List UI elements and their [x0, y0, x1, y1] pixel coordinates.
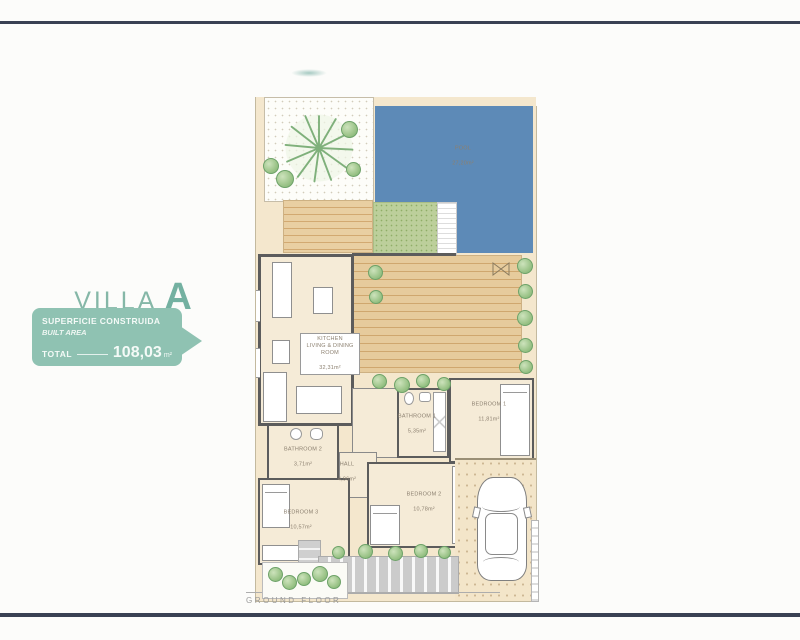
plant-icon — [268, 567, 283, 582]
room-label-bedroom2: BEDROOM 2 10,78m² — [407, 485, 442, 522]
plant-icon — [438, 546, 451, 559]
badge-line2: BUILT AREA — [42, 328, 172, 337]
top-divider — [0, 21, 800, 24]
plant-icon — [332, 546, 345, 559]
sink-icon — [419, 392, 431, 402]
plant-icon — [341, 121, 358, 138]
plant-icon — [358, 544, 373, 559]
plant-icon — [372, 374, 387, 389]
plant-icon — [368, 265, 383, 280]
room-label-bedroom1: BEDROOM 1 11,81m² — [472, 395, 507, 432]
grass-patch — [373, 202, 439, 255]
room-label-bathroom2: BATHROOM 2 3,71m² — [284, 440, 322, 477]
plant-icon — [276, 170, 294, 188]
plant-icon — [518, 284, 533, 299]
room-label-kitchen: KITCHEN LIVING & DINING ROOM 32,31m² — [306, 329, 353, 380]
plant-icon — [518, 338, 533, 353]
plant-icon — [517, 310, 533, 326]
logo-mark — [291, 69, 327, 77]
plant-icon — [263, 158, 279, 174]
bed — [370, 505, 400, 545]
sink-icon — [290, 428, 302, 440]
plant-icon — [297, 572, 311, 586]
gate — [531, 520, 539, 602]
total-leader-line — [77, 354, 108, 355]
plant-icon — [437, 377, 451, 391]
side-table — [313, 287, 333, 314]
driveway-wall — [455, 458, 536, 460]
plant-icon — [517, 258, 533, 274]
room-label-bedroom3: BEDROOM 3 10,57m² — [284, 503, 319, 540]
plant-icon — [369, 290, 383, 304]
ground-floor-label: GROUND FLOOR — [246, 596, 341, 605]
badge-arrow-icon — [180, 326, 202, 356]
badge-total-row: TOTAL 108,03 m² — [42, 344, 172, 362]
plant-icon — [394, 377, 410, 393]
plant-icon — [282, 575, 297, 590]
total-unit: m² — [164, 352, 172, 359]
window — [256, 290, 260, 322]
plant-icon — [388, 546, 403, 561]
plant-icon — [312, 566, 328, 582]
plant-icon — [414, 544, 428, 558]
paving-strip — [437, 202, 457, 255]
kitchen-counter — [263, 372, 287, 422]
room-label-bathroom1: BATHROOM 1 5,35m² — [398, 407, 436, 444]
built-area-badge: SUPERFICIE CONSTRUIDA BUILT AREA TOTAL 1… — [32, 308, 182, 366]
room-label-hall: HALL 4,96m² — [338, 455, 356, 492]
total-label: TOTAL — [42, 349, 72, 359]
toilet-icon — [404, 392, 414, 405]
wood-deck-small — [283, 200, 373, 253]
dining-table: KITCHEN LIVING & DINING ROOM 32,31m² — [300, 333, 360, 375]
plant-icon — [327, 575, 341, 589]
sofa — [272, 262, 292, 318]
bottom-divider — [0, 613, 800, 617]
plant-icon — [346, 162, 361, 177]
kitchen-island — [296, 386, 342, 414]
car-icon — [477, 477, 527, 581]
plant-icon — [519, 360, 533, 374]
toilet-icon — [310, 428, 323, 440]
plant-icon — [416, 374, 430, 388]
terrace-wall — [352, 253, 456, 256]
room-corridor — [352, 388, 398, 458]
room-label-pool: POOL 27,20m² — [452, 139, 474, 176]
total-value: 108,03 — [113, 344, 162, 362]
floor-plan-page: VILLA A SUPERFICIE CONSTRUIDA BUILT AREA… — [0, 0, 800, 640]
window — [256, 348, 260, 378]
armchair — [272, 340, 290, 364]
badge-line1: SUPERFICIE CONSTRUIDA — [42, 316, 172, 326]
deck-symbol-icon — [492, 262, 510, 276]
